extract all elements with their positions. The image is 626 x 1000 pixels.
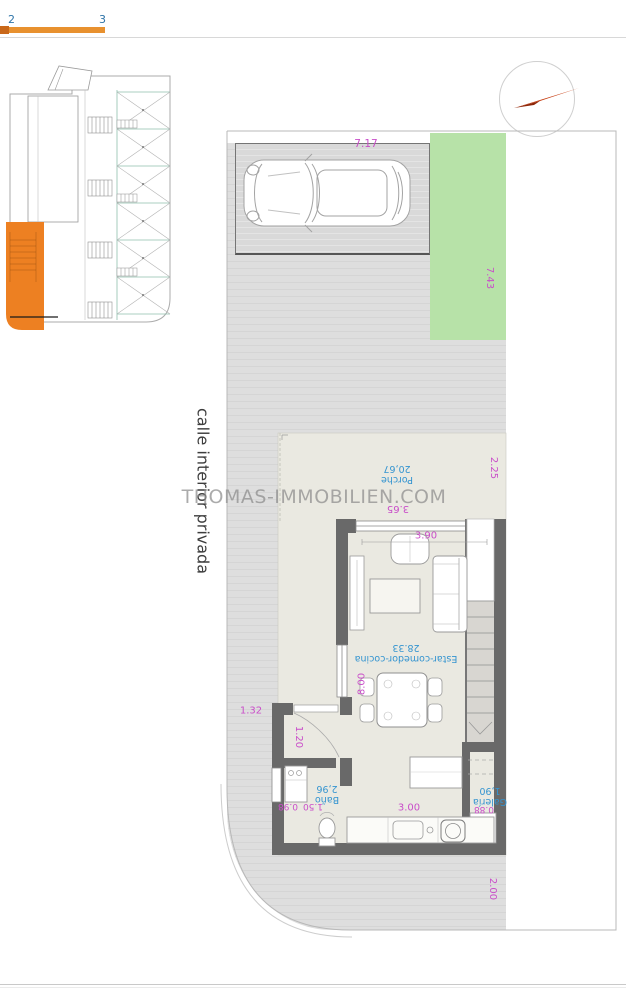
dim-living-width: 3.90 [415, 530, 437, 542]
room-area: 2,96 [315, 782, 339, 793]
room-label-living: Estar-comedor-cocina 28.33 [355, 641, 458, 663]
dim-porch-side: 2.25 [487, 457, 499, 479]
plan-page: 2 3 [0, 0, 626, 1000]
active-tab-bar-tip [0, 26, 9, 34]
room-name: Estar-comedor-cocina [355, 652, 458, 663]
left-building-block [28, 96, 78, 222]
dim-parking-width: 7.17 [354, 138, 377, 150]
stair-ladders [88, 117, 112, 318]
tab-page-3[interactable]: 3 [99, 13, 106, 26]
dim-rear-margin: 2.00 [486, 878, 498, 900]
tilted-roof-block [48, 66, 92, 90]
compass [499, 61, 575, 137]
north-arrow-icon [500, 62, 574, 136]
room-name: Porche [381, 473, 413, 484]
room-label-bathroom: Baño 2,96 [315, 782, 339, 804]
parking-area [235, 143, 430, 255]
room-name: Galería [473, 795, 507, 806]
header-divider [0, 37, 626, 38]
garden-area [430, 133, 506, 340]
room-area: 20,67 [381, 462, 413, 473]
dim-kitchen-width: 3.00 [398, 802, 420, 814]
site-location-plan [2, 62, 184, 342]
dim-bath-width: 0.98 [278, 801, 298, 811]
unit-row [117, 92, 170, 314]
room-label-porche: Porche 20,67 [381, 462, 413, 484]
room-label-gallery: Galería 1,90 [473, 784, 507, 806]
room-name: Baño [315, 793, 339, 804]
footer-divider-2 [0, 987, 626, 988]
footer-divider [0, 984, 626, 985]
active-tab-bar [2, 27, 105, 33]
dim-living-depth: 8.00 [356, 673, 368, 695]
watermark: THOMAS-IMMOBILIEN.COM [182, 486, 447, 508]
tab-page-2[interactable]: 2 [8, 13, 15, 26]
highlighted-unit [6, 222, 58, 330]
dim-garden-depth: 7.43 [483, 267, 495, 289]
room-area: 28.33 [355, 641, 458, 652]
dim-hall-width: 1.20 [292, 726, 304, 748]
dim-side-path: 1.32 [240, 705, 262, 717]
room-area: 1,90 [473, 784, 507, 795]
